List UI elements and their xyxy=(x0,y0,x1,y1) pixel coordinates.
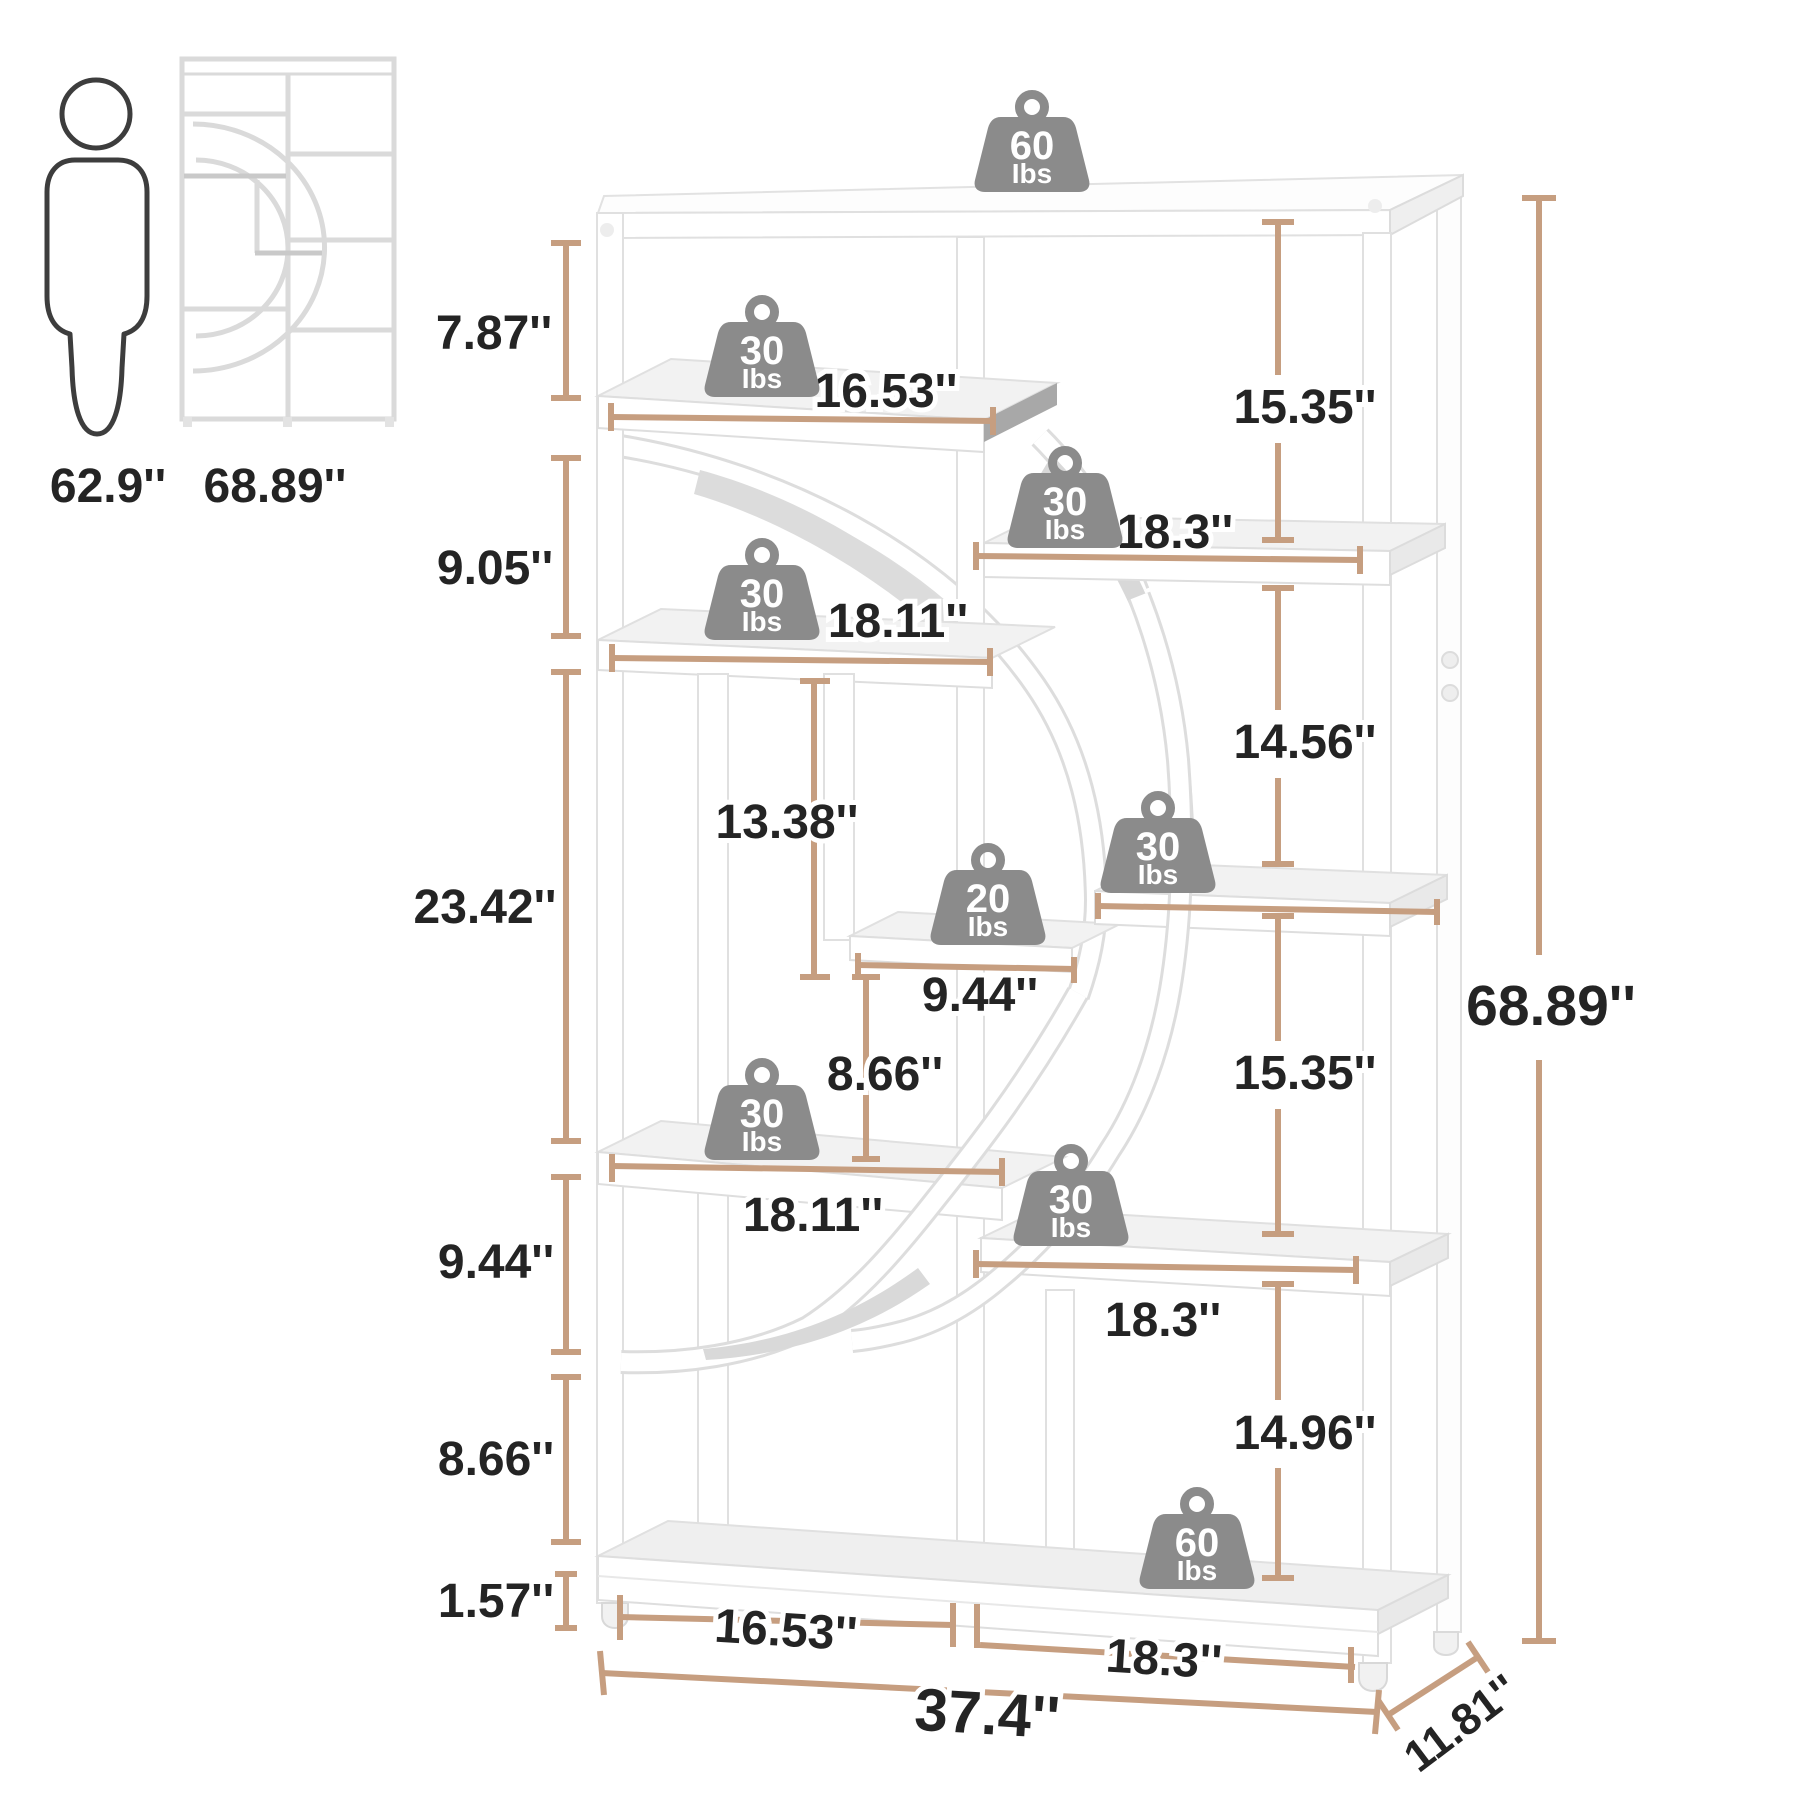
svg-text:Ibs: Ibs xyxy=(742,1126,782,1157)
svg-text:37.4'': 37.4'' xyxy=(913,1676,1062,1752)
svg-text:15.35'': 15.35'' xyxy=(1234,1047,1377,1100)
svg-text:Ibs: Ibs xyxy=(968,911,1008,942)
svg-text:Ibs: Ibs xyxy=(1045,514,1085,545)
svg-text:8.66'': 8.66'' xyxy=(438,1433,554,1486)
svg-text:7.87'': 7.87'' xyxy=(436,307,552,360)
svg-text:9.05'': 9.05'' xyxy=(437,542,553,595)
svg-text:15.35'': 15.35'' xyxy=(1234,381,1377,434)
svg-text:16.53'': 16.53'' xyxy=(713,1600,859,1662)
svg-text:16.53'': 16.53'' xyxy=(815,365,958,418)
svg-text:18.11'': 18.11'' xyxy=(743,1189,883,1242)
svg-text:Ibs: Ibs xyxy=(1138,859,1178,890)
svg-text:18.3'': 18.3'' xyxy=(1104,1630,1223,1690)
svg-text:62.9'': 62.9'' xyxy=(50,460,166,513)
svg-text:1.57'': 1.57'' xyxy=(438,1575,554,1628)
svg-text:14.96'': 14.96'' xyxy=(1234,1407,1377,1460)
svg-text:Ibs: Ibs xyxy=(1177,1555,1217,1586)
svg-text:Ibs: Ibs xyxy=(742,363,782,394)
svg-text:68.89'': 68.89'' xyxy=(1466,974,1636,1038)
svg-text:9.44'': 9.44'' xyxy=(922,969,1038,1022)
svg-text:18.11'': 18.11'' xyxy=(828,595,968,648)
svg-text:Ibs: Ibs xyxy=(1051,1212,1091,1243)
svg-text:23.42'': 23.42'' xyxy=(414,881,557,934)
svg-text:Ibs: Ibs xyxy=(742,606,782,637)
svg-text:13.38'': 13.38'' xyxy=(716,796,859,849)
svg-text:8.66'': 8.66'' xyxy=(827,1048,943,1101)
svg-text:Ibs: Ibs xyxy=(1012,158,1052,189)
svg-text:18.3'': 18.3'' xyxy=(1105,1294,1221,1347)
svg-text:18.3'': 18.3'' xyxy=(1117,506,1233,559)
svg-text:68.89'': 68.89'' xyxy=(204,460,347,513)
svg-text:9.44'': 9.44'' xyxy=(438,1236,554,1289)
svg-text:14.56'': 14.56'' xyxy=(1234,716,1377,769)
